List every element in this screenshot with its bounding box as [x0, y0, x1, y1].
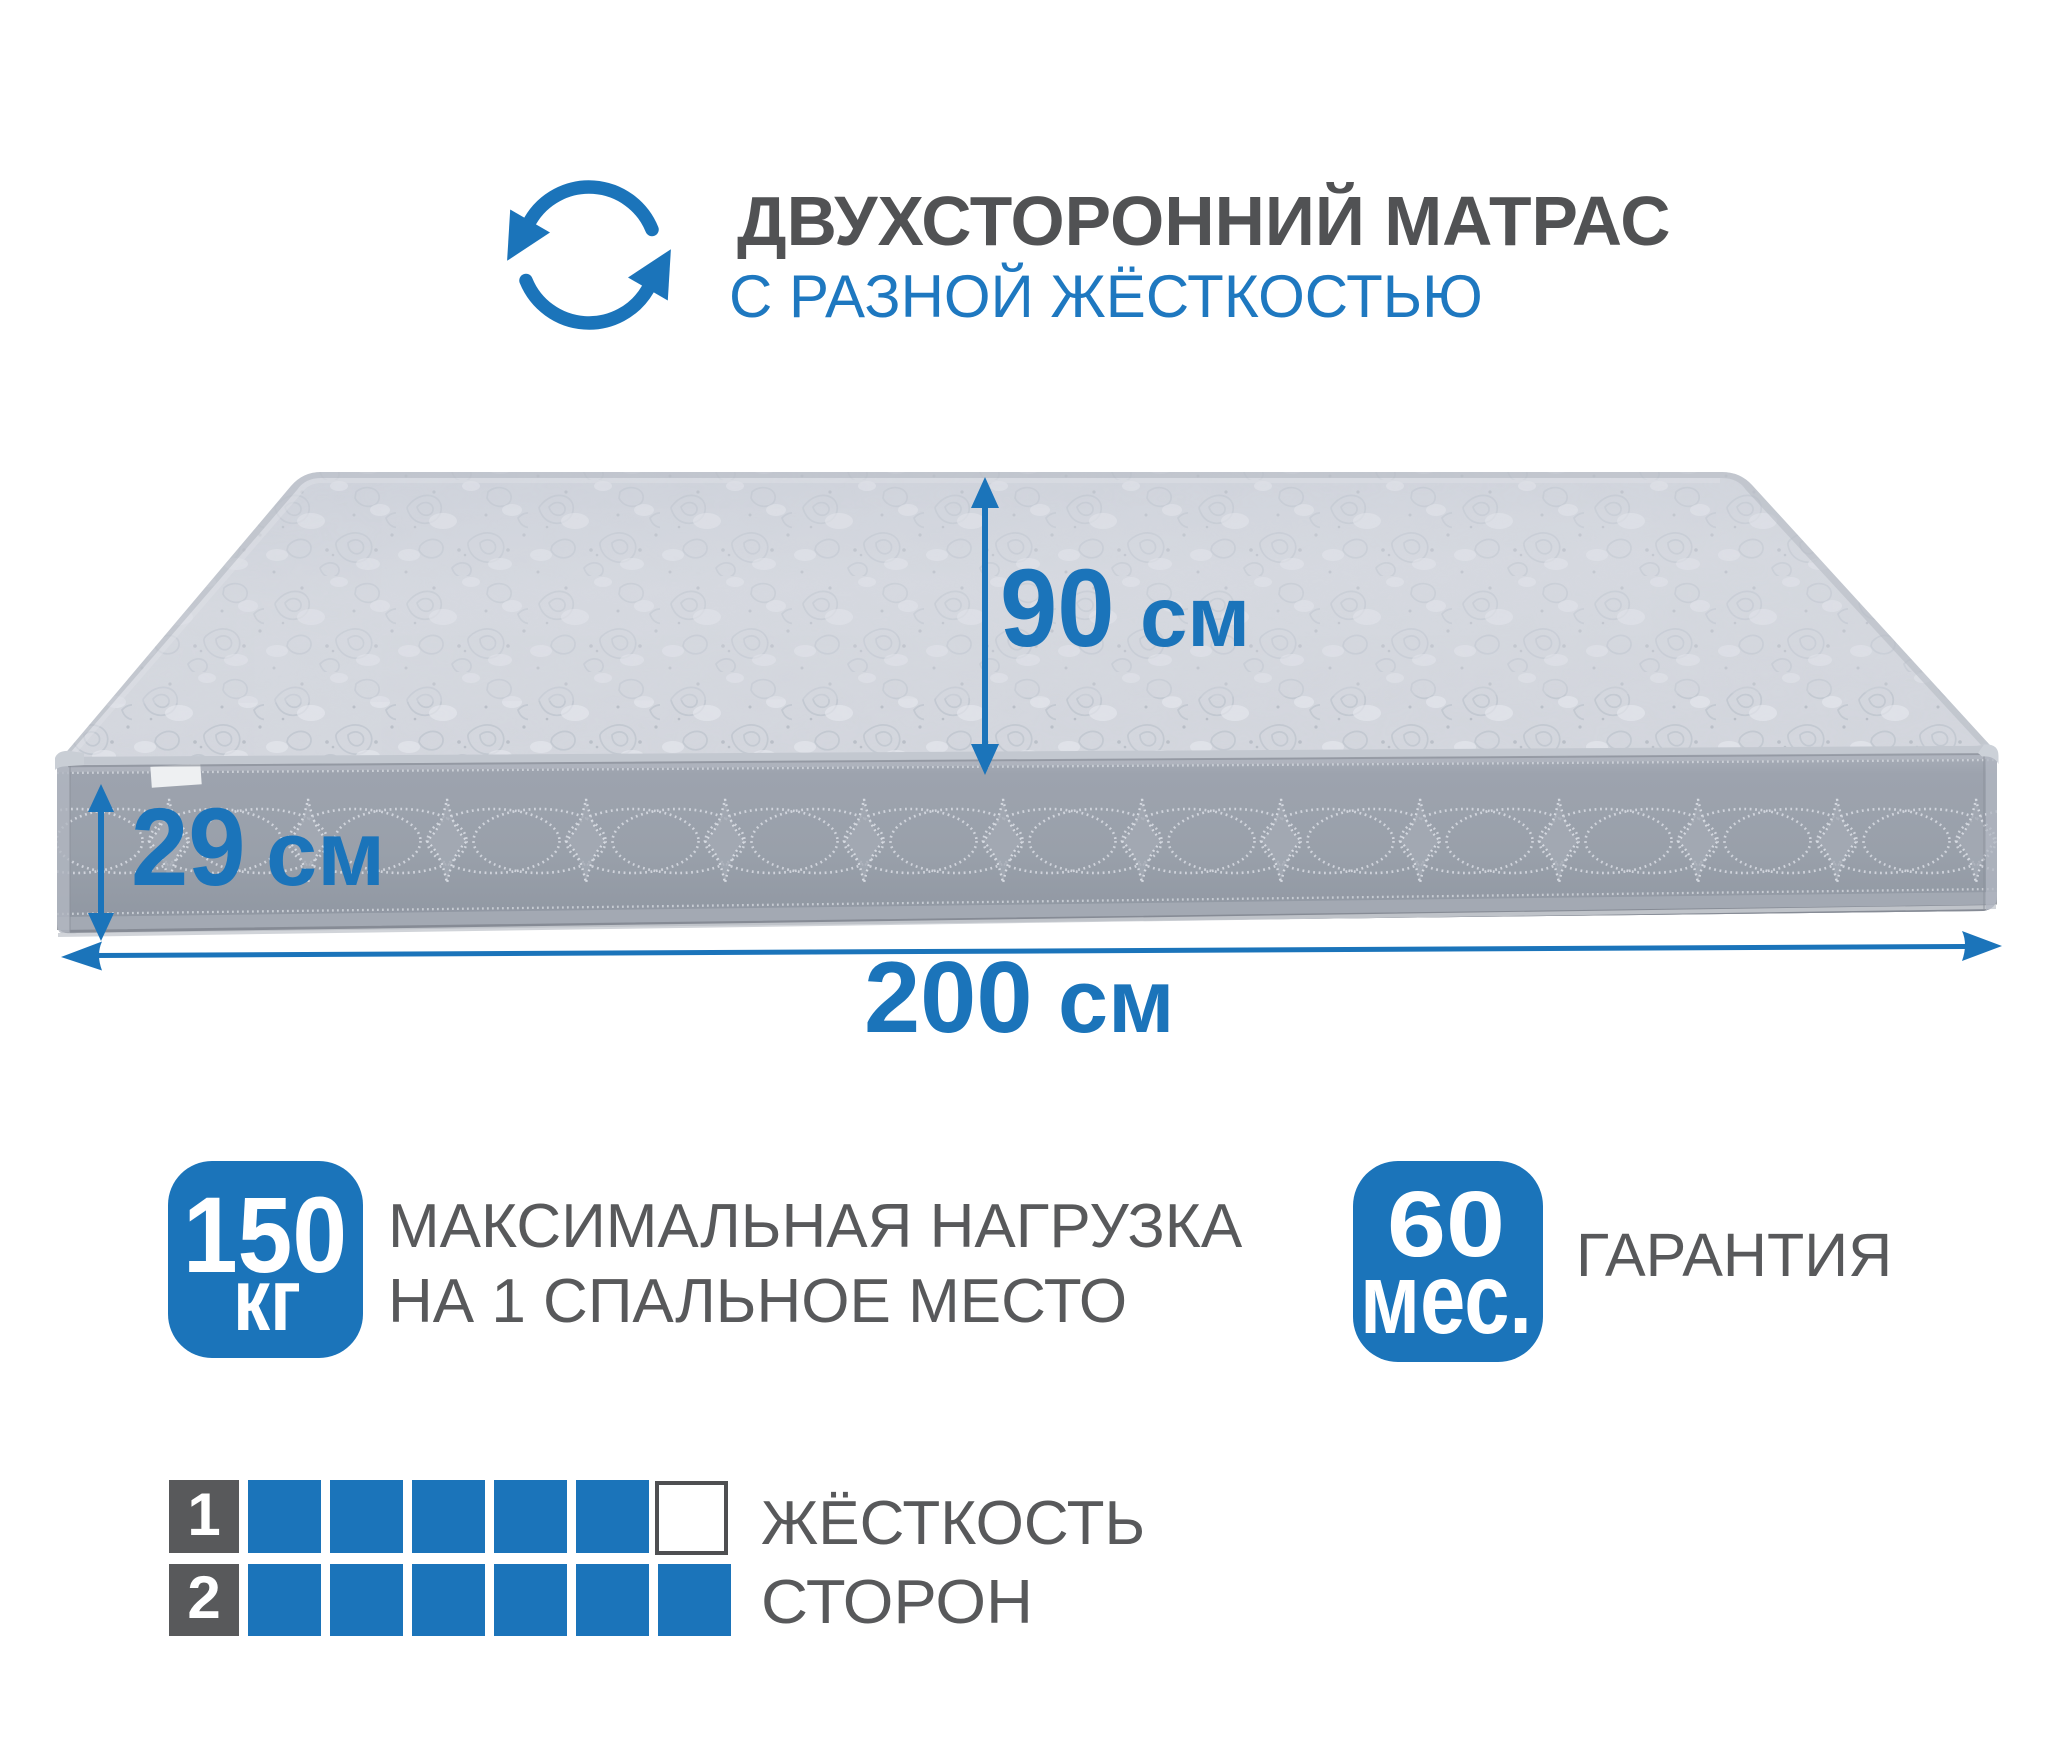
svg-text:кг: кг: [233, 1250, 301, 1349]
svg-text:см: см: [1058, 952, 1175, 1052]
svg-text:29: 29: [131, 785, 246, 909]
svg-text:МАКСИМАЛЬНАЯ НАГРУЗКА: МАКСИМАЛЬНАЯ НАГРУЗКА: [388, 1192, 1243, 1261]
svg-text:СТОРОН: СТОРОН: [761, 1568, 1033, 1637]
svg-text:см: см: [1140, 570, 1250, 665]
svg-text:ДВУХСТОРОННИЙ МАТРАС: ДВУХСТОРОННИЙ МАТРАС: [737, 181, 1671, 260]
svg-text:ГАРАНТИЯ: ГАРАНТИЯ: [1576, 1221, 1892, 1289]
svg-text:НА 1 СПАЛЬНОЕ МЕСТО: НА 1 СПАЛЬНОЕ МЕСТО: [388, 1267, 1127, 1336]
svg-text:90: 90: [1000, 546, 1115, 670]
svg-text:мес.: мес.: [1360, 1243, 1532, 1355]
svg-text:см: см: [266, 803, 385, 905]
svg-text:ЖЁСТКОСТЬ: ЖЁСТКОСТЬ: [761, 1489, 1145, 1558]
svg-text:С РАЗНОЙ ЖЁСТКОСТЬЮ: С РАЗНОЙ ЖЁСТКОСТЬЮ: [729, 263, 1483, 330]
svg-text:1: 1: [187, 1481, 220, 1548]
svg-text:200: 200: [864, 942, 1033, 1054]
svg-text:2: 2: [187, 1564, 220, 1631]
